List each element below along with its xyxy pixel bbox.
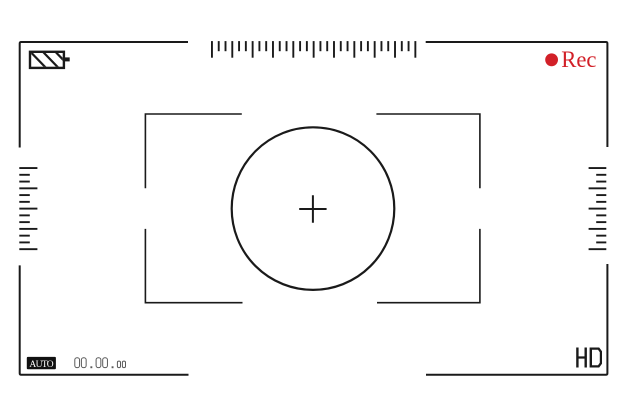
- svg-text:Rec: Rec: [561, 47, 596, 72]
- svg-text:AUTO: AUTO: [29, 360, 53, 370]
